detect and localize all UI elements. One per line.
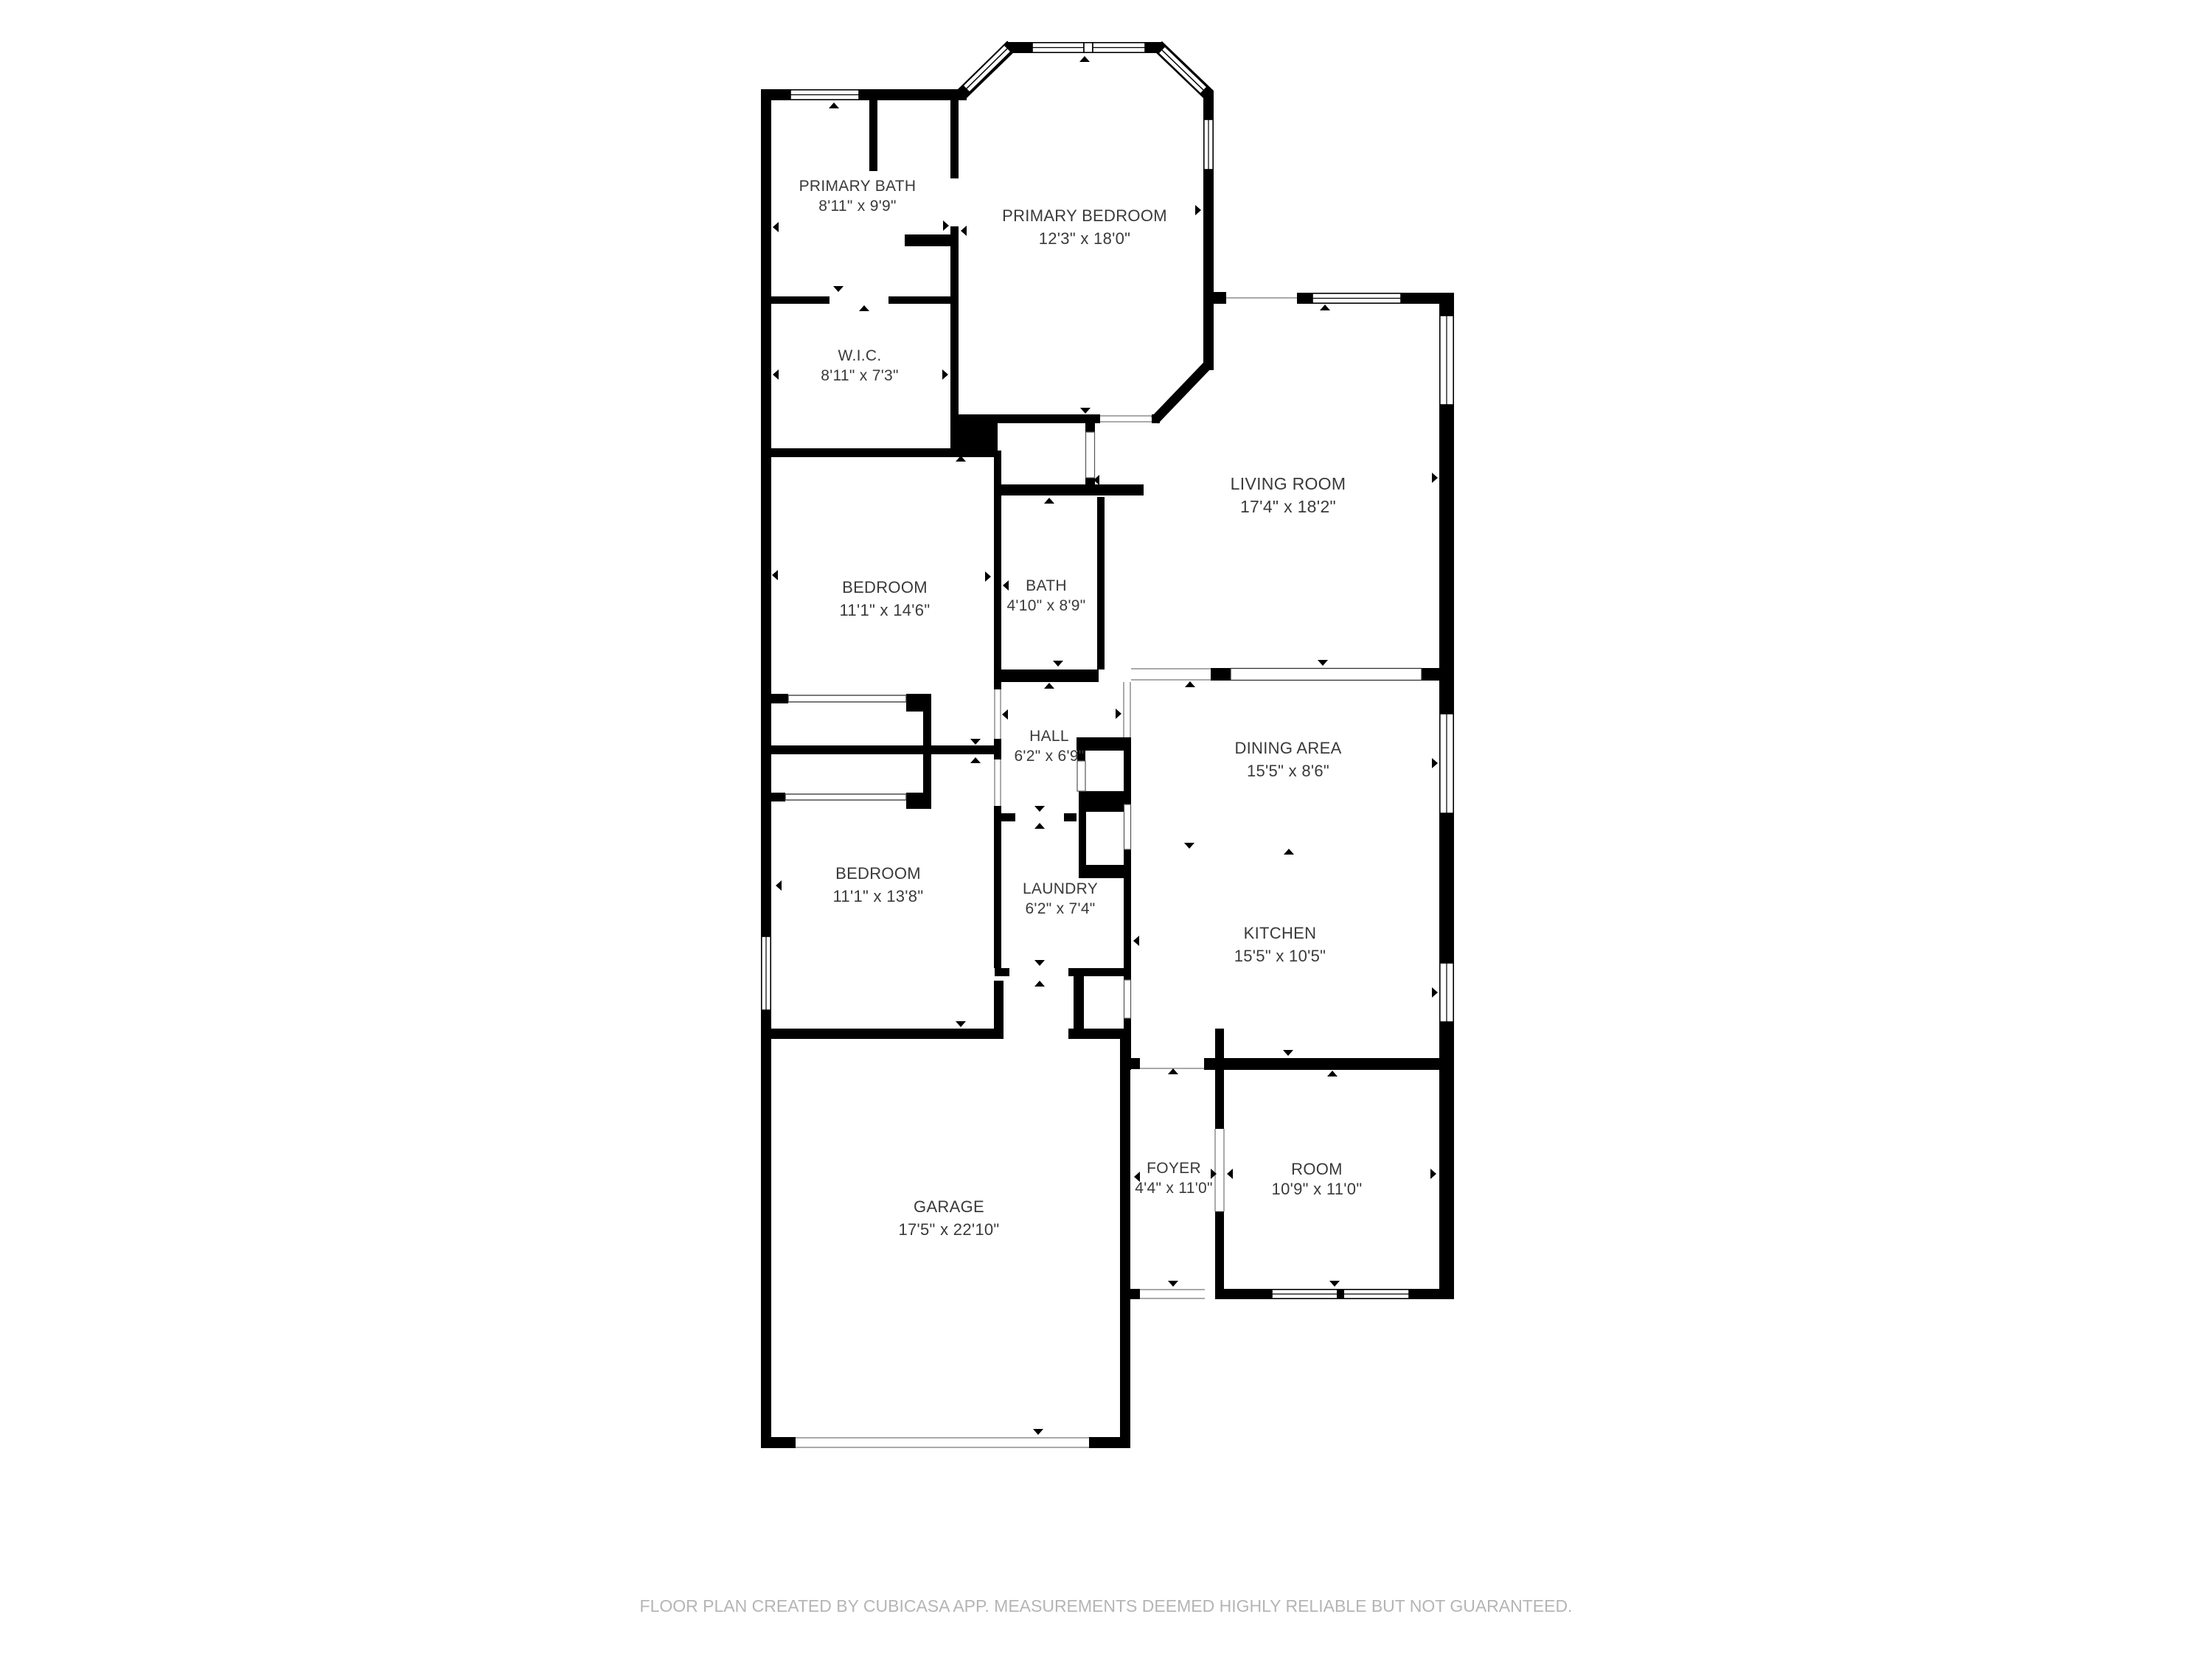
svg-text:GARAGE: GARAGE — [914, 1197, 984, 1216]
svg-text:15'5" x 8'6": 15'5" x 8'6" — [1247, 762, 1329, 780]
svg-text:PRIMARY BATH: PRIMARY BATH — [799, 178, 917, 195]
svg-text:KITCHEN: KITCHEN — [1244, 924, 1317, 942]
svg-text:BATH: BATH — [1026, 577, 1067, 594]
svg-text:17'5" x 22'10": 17'5" x 22'10" — [898, 1220, 999, 1239]
svg-text:BEDROOM: BEDROOM — [842, 578, 928, 597]
svg-text:4'4" x 11'0": 4'4" x 11'0" — [1135, 1180, 1213, 1197]
svg-text:LIVING ROOM: LIVING ROOM — [1231, 474, 1346, 493]
svg-text:10'9" x 11'0": 10'9" x 11'0" — [1272, 1180, 1363, 1198]
svg-text:HALL: HALL — [1029, 728, 1069, 745]
svg-text:LAUNDRY: LAUNDRY — [1023, 880, 1098, 897]
svg-text:BEDROOM: BEDROOM — [835, 864, 921, 883]
svg-text:11'1" x 14'6": 11'1" x 14'6" — [840, 601, 931, 619]
svg-text:6'2" x 6'9": 6'2" x 6'9" — [1014, 748, 1084, 765]
svg-text:6'2" x 7'4": 6'2" x 7'4" — [1025, 900, 1095, 917]
svg-text:8'11" x 9'9": 8'11" x 9'9" — [818, 198, 897, 215]
svg-text:PRIMARY BEDROOM: PRIMARY BEDROOM — [1002, 206, 1167, 225]
svg-text:4'10" x 8'9": 4'10" x 8'9" — [1006, 597, 1085, 614]
svg-text:DINING AREA: DINING AREA — [1234, 739, 1341, 757]
svg-text:15'5" x 10'5": 15'5" x 10'5" — [1234, 947, 1326, 965]
svg-text:12'3" x 18'0": 12'3" x 18'0" — [1039, 229, 1131, 248]
svg-text:W.I.C.: W.I.C. — [838, 347, 882, 364]
svg-text:ROOM: ROOM — [1291, 1160, 1343, 1178]
svg-text:17'4" x 18'2": 17'4" x 18'2" — [1240, 497, 1336, 516]
svg-text:11'1" x 13'8": 11'1" x 13'8" — [833, 887, 924, 905]
svg-text:FLOOR PLAN CREATED BY CUBICASA: FLOOR PLAN CREATED BY CUBICASA APP. MEAS… — [640, 1596, 1573, 1615]
svg-text:8'11" x 7'3": 8'11" x 7'3" — [821, 367, 899, 384]
svg-text:FOYER: FOYER — [1147, 1160, 1201, 1177]
